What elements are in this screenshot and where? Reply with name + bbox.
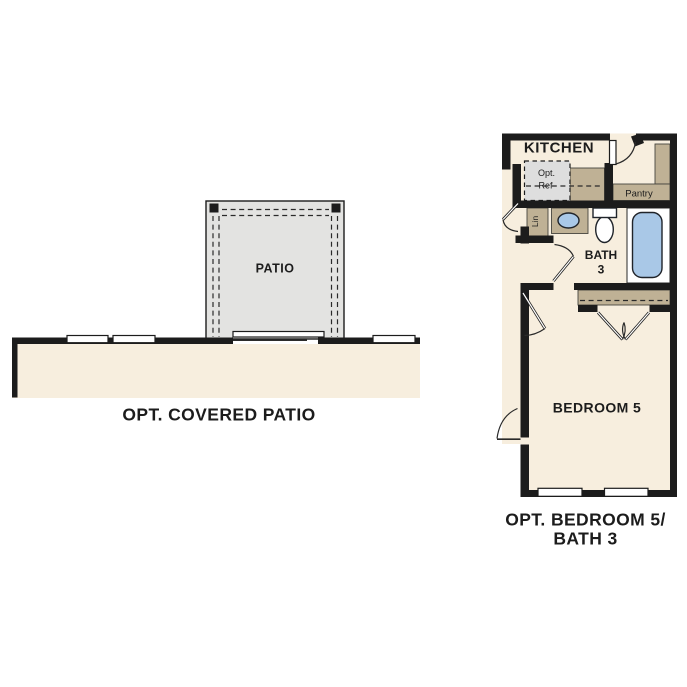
covered-patio-caption: OPT. COVERED PATIO <box>122 405 315 425</box>
bedroom-left-wall <box>521 290 530 438</box>
covered-patio-plan: PATIO OPT. COVERED PATIO <box>12 201 420 425</box>
bath3-label-line2: 3 <box>598 263 605 277</box>
linen-label: Lin <box>530 216 540 228</box>
toilet-bowl <box>596 217 614 243</box>
patio-room-label: PATIO <box>256 262 295 276</box>
bedroom-closet-shelf <box>578 290 670 305</box>
kitchen-label: KITCHEN <box>524 140 594 157</box>
bedroom5-label: BEDROOM 5 <box>553 400 641 416</box>
sliding-door-panel <box>233 332 324 338</box>
opt-ref-label-line2: Ref <box>538 181 553 191</box>
floorplan-svg: PATIO OPT. COVERED PATIO <box>0 0 687 687</box>
window <box>67 336 108 343</box>
toilet-tank <box>593 208 617 218</box>
bath3-label-line1: BATH <box>585 248 617 262</box>
house-floor <box>12 344 420 398</box>
bedroom5-caption-line1: OPT. BEDROOM 5/ <box>505 510 666 530</box>
window <box>605 488 649 496</box>
bath-bedroom-wall <box>574 283 677 290</box>
sink <box>558 213 579 228</box>
closet-wall <box>578 305 598 312</box>
window <box>113 336 155 343</box>
bedroom5-caption-line2: BATH 3 <box>553 529 617 549</box>
side-wall <box>12 338 18 398</box>
bedroom-left-wall <box>521 445 530 491</box>
patio-post <box>332 204 341 213</box>
kitchen-bath-wall <box>513 201 678 209</box>
left-wall-upper <box>502 134 511 170</box>
kitchen-counter <box>570 168 605 201</box>
bathtub <box>633 213 663 278</box>
kitchen-pantry-wall <box>605 163 614 202</box>
window <box>538 488 582 496</box>
right-wall <box>670 134 677 498</box>
floorplan-sheet: PATIO OPT. COVERED PATIO <box>0 0 687 687</box>
window <box>373 336 415 343</box>
bath-bedroom-wall <box>521 283 554 290</box>
pantry-label: Pantry <box>625 189 653 200</box>
pantry-shelf-side <box>655 144 670 184</box>
patio-post <box>210 204 219 213</box>
closet-wall <box>650 305 671 312</box>
left-wall-upper <box>513 164 522 204</box>
pantry-door-leaf <box>610 141 617 165</box>
opt-ref-label-line1: Opt. <box>538 168 555 178</box>
linen-wall <box>516 236 554 244</box>
bedroom5-bath3-plan: KITCHEN Opt. Ref Pantry Lin BATH 3 BEDRO… <box>497 134 677 549</box>
